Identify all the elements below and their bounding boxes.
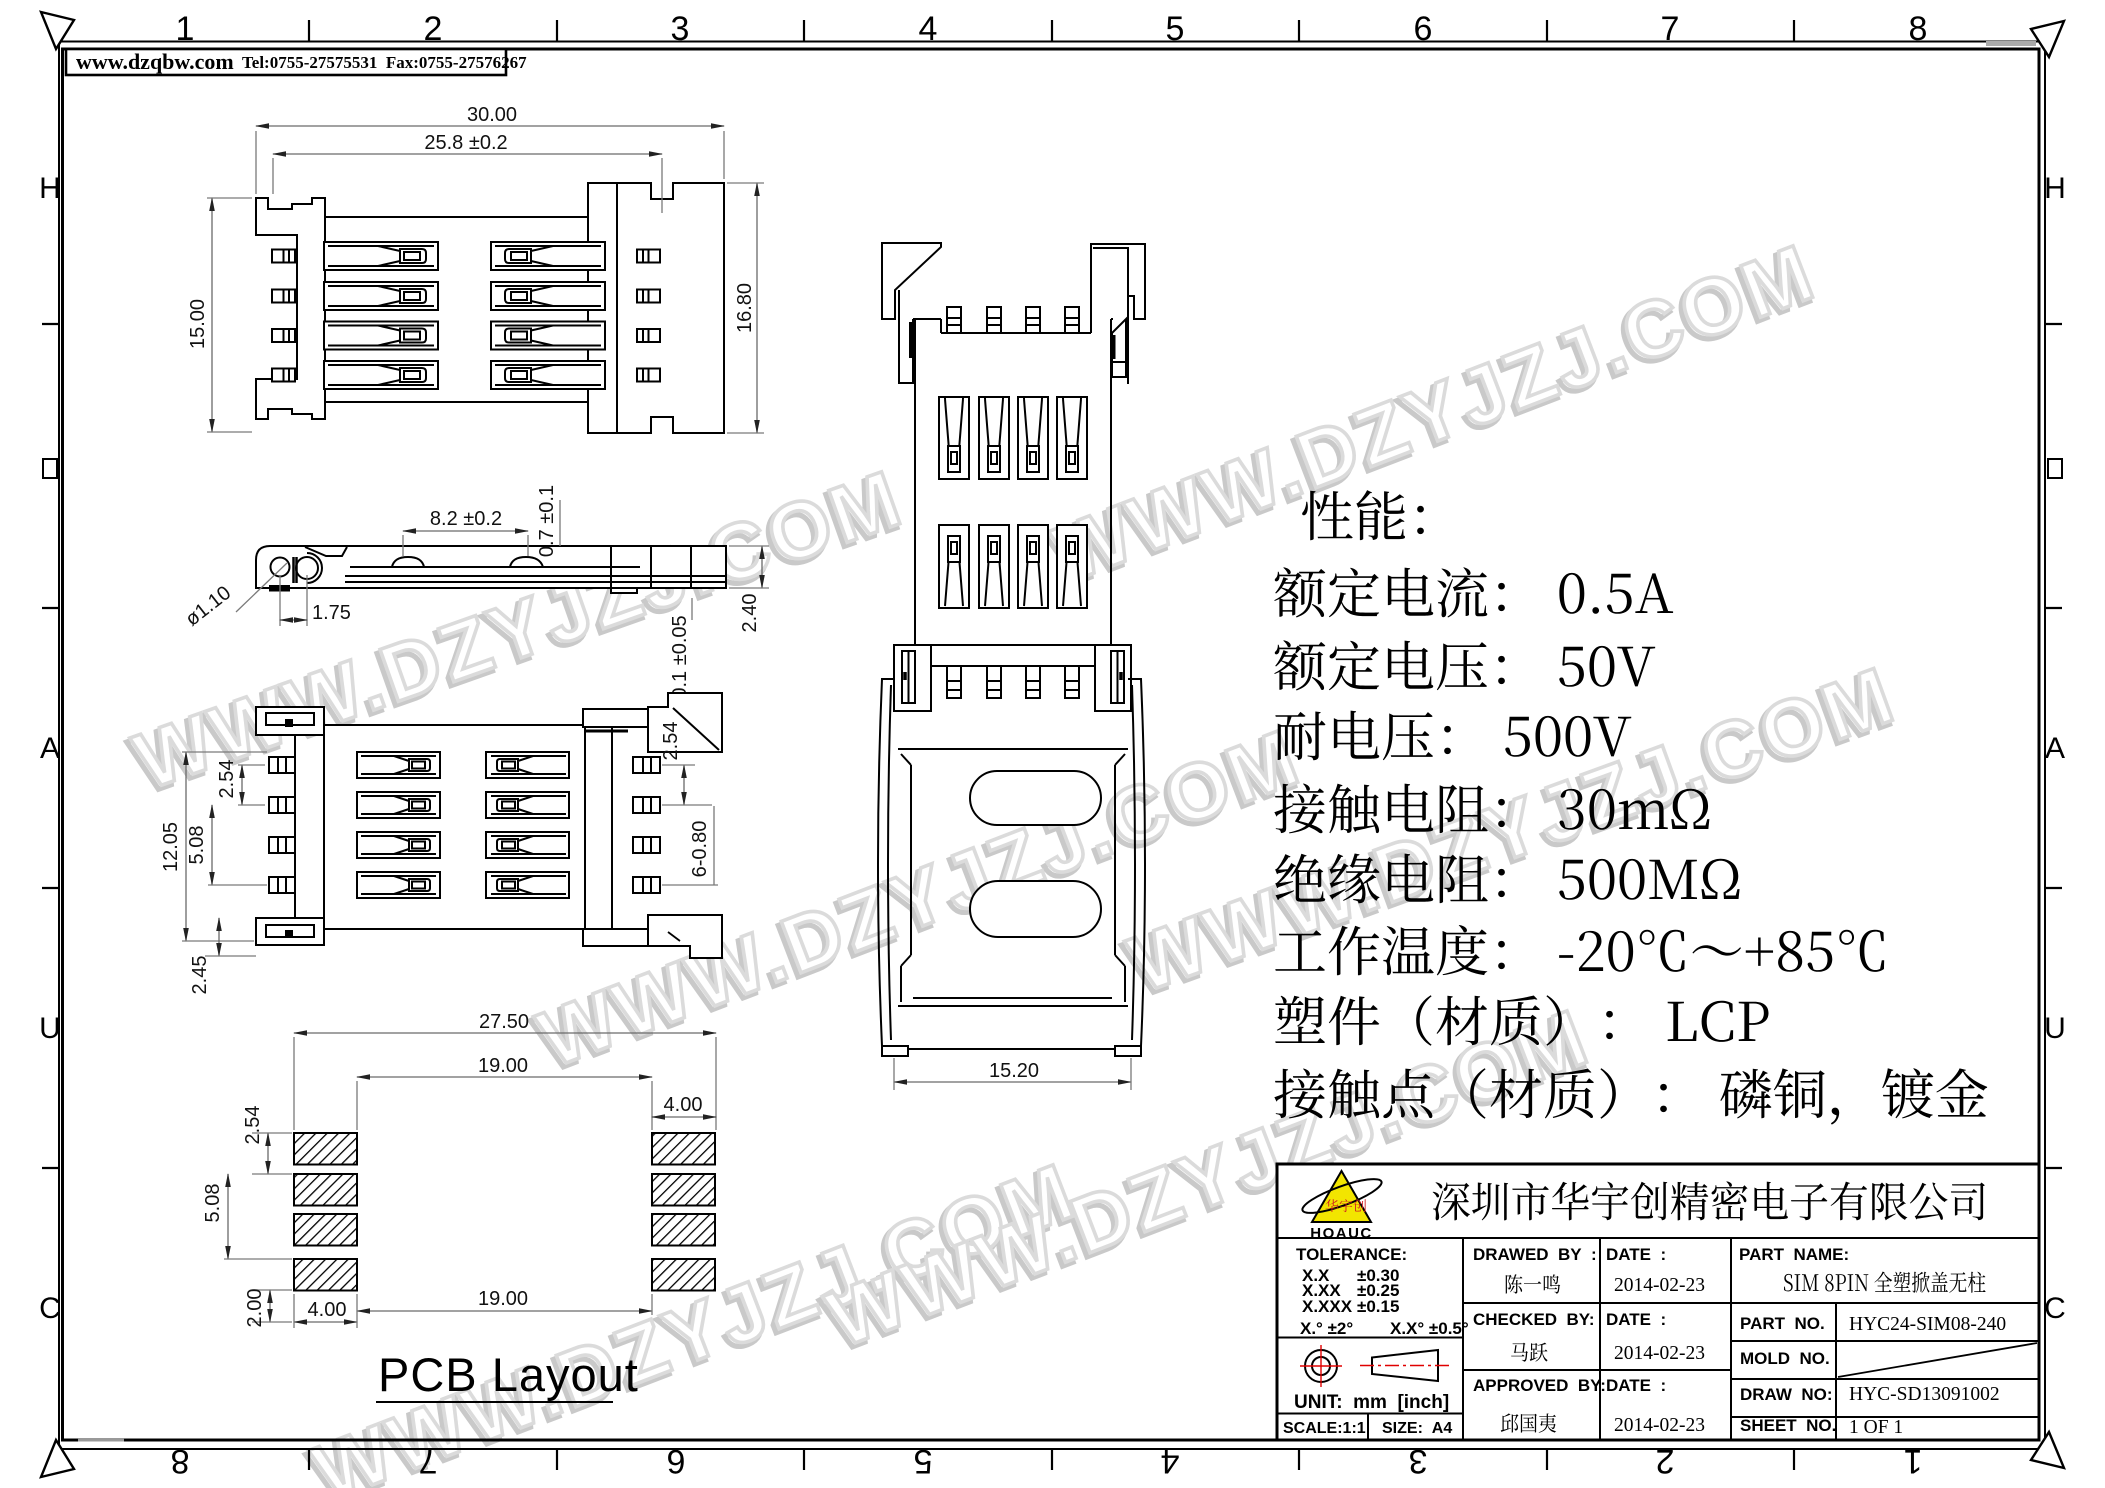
svg-text:5: 5 — [914, 1442, 933, 1480]
svg-text:C: C — [39, 1292, 61, 1325]
svg-text:HYC24-SIM08-240: HYC24-SIM08-240 — [1849, 1314, 2006, 1335]
svg-text:5: 5 — [1166, 10, 1185, 48]
svg-text:19.00: 19.00 — [478, 1055, 528, 1077]
svg-text:A: A — [2045, 732, 2065, 765]
svg-text:2014-02-23: 2014-02-23 — [1614, 1343, 1705, 1364]
svg-text:30.00: 30.00 — [467, 104, 517, 126]
svg-text:SHEET NO.: SHEET NO. — [1740, 1416, 1836, 1435]
svg-text:16.80: 16.80 — [734, 283, 756, 333]
svg-text:27.50: 27.50 — [479, 1011, 529, 1033]
svg-text:TOLERANCE:: TOLERANCE: — [1296, 1245, 1407, 1264]
svg-text:1: 1 — [1904, 1442, 1923, 1480]
svg-text:C: C — [2044, 1292, 2066, 1325]
svg-text:UNIT: mm [inch]: UNIT: mm [inch] — [1294, 1392, 1449, 1413]
svg-text:U: U — [39, 1012, 61, 1045]
svg-text:6: 6 — [1414, 10, 1433, 48]
svg-text:0.1 ±0.05: 0.1 ±0.05 — [669, 615, 691, 698]
svg-text:19.00: 19.00 — [478, 1288, 528, 1310]
svg-text:4.00: 4.00 — [664, 1094, 703, 1116]
svg-text:X.XXX: X.XXX — [1302, 1297, 1353, 1316]
svg-text:2: 2 — [1656, 1442, 1675, 1480]
svg-text:www.dzqbw.com: www.dzqbw.com — [76, 49, 234, 74]
svg-text:2.40: 2.40 — [739, 594, 761, 633]
svg-text:PART NAME:: PART NAME: — [1739, 1245, 1849, 1264]
svg-text:PART NO.: PART NO. — [1740, 1314, 1825, 1333]
svg-text:DATE :: DATE : — [1606, 1310, 1666, 1329]
svg-text:DATE :: DATE : — [1606, 1245, 1666, 1264]
svg-text:U: U — [2044, 1012, 2066, 1045]
svg-text:6: 6 — [667, 1442, 686, 1480]
svg-text:1.75: 1.75 — [312, 602, 351, 624]
svg-text:2014-02-23: 2014-02-23 — [1614, 1275, 1705, 1296]
svg-text:4: 4 — [1161, 1442, 1180, 1480]
svg-text:DRAWED BY :: DRAWED BY : — [1473, 1245, 1597, 1264]
svg-text:8: 8 — [1909, 10, 1928, 48]
svg-text:2.54: 2.54 — [216, 760, 238, 799]
svg-text:3: 3 — [1409, 1442, 1428, 1480]
svg-text:3: 3 — [671, 10, 690, 48]
svg-text:SCALE:1:1: SCALE:1:1 — [1283, 1420, 1366, 1437]
svg-text:±0.15: ±0.15 — [1357, 1297, 1399, 1316]
svg-text:2.00: 2.00 — [244, 1289, 266, 1328]
svg-text:H: H — [39, 172, 61, 205]
svg-text:7: 7 — [1661, 10, 1680, 48]
svg-text:4.00: 4.00 — [308, 1299, 347, 1321]
svg-text:4: 4 — [919, 10, 938, 48]
svg-text:HYC-SD13091002: HYC-SD13091002 — [1849, 1384, 2000, 1405]
svg-text:APPROVED BY:: APPROVED BY: — [1473, 1376, 1606, 1395]
svg-text:5.08: 5.08 — [186, 826, 208, 865]
svg-text:H: H — [2044, 172, 2066, 205]
svg-text:SIZE: A4: SIZE: A4 — [1382, 1420, 1452, 1437]
svg-text:0.7 ±0.1: 0.7 ±0.1 — [536, 485, 558, 557]
svg-text:2: 2 — [424, 10, 443, 48]
svg-text:7: 7 — [419, 1442, 438, 1480]
svg-text:2.54: 2.54 — [660, 722, 682, 761]
svg-text:2014-02-23: 2014-02-23 — [1614, 1415, 1705, 1436]
svg-text:DATE :: DATE : — [1606, 1376, 1666, 1395]
svg-text:1: 1 — [176, 10, 195, 48]
svg-text:DRAW NO:: DRAW NO: — [1740, 1385, 1833, 1404]
svg-text:MOLD NO.: MOLD NO. — [1740, 1349, 1830, 1368]
svg-text:12.05: 12.05 — [160, 822, 182, 872]
svg-text:8: 8 — [171, 1442, 190, 1480]
svg-text:2.54: 2.54 — [242, 1106, 264, 1145]
svg-text:5.08: 5.08 — [202, 1184, 224, 1223]
svg-text:15.20: 15.20 — [989, 1060, 1039, 1082]
svg-text:A: A — [40, 732, 60, 765]
svg-text:1 OF 1: 1 OF 1 — [1849, 1417, 1903, 1438]
svg-text:8.2 ±0.2: 8.2 ±0.2 — [430, 508, 502, 530]
svg-text:PCB Layout: PCB Layout — [378, 1348, 639, 1401]
svg-text:2.45: 2.45 — [189, 956, 211, 995]
svg-text:HOAUC: HOAUC — [1310, 1225, 1373, 1242]
svg-text:25.8 ±0.2: 25.8 ±0.2 — [424, 132, 507, 154]
svg-text:CHECKED BY:: CHECKED BY: — [1473, 1310, 1595, 1329]
svg-text:Tel:0755-27575531 Fax:0755-27: Tel:0755-27575531 Fax:0755-27576267 — [242, 53, 527, 72]
svg-text:X.X° ±0.5°: X.X° ±0.5° — [1390, 1319, 1469, 1338]
svg-text:15.00: 15.00 — [187, 299, 209, 349]
svg-text:X.° ±2°: X.° ±2° — [1300, 1319, 1353, 1338]
svg-text:6-0.80: 6-0.80 — [689, 821, 711, 878]
